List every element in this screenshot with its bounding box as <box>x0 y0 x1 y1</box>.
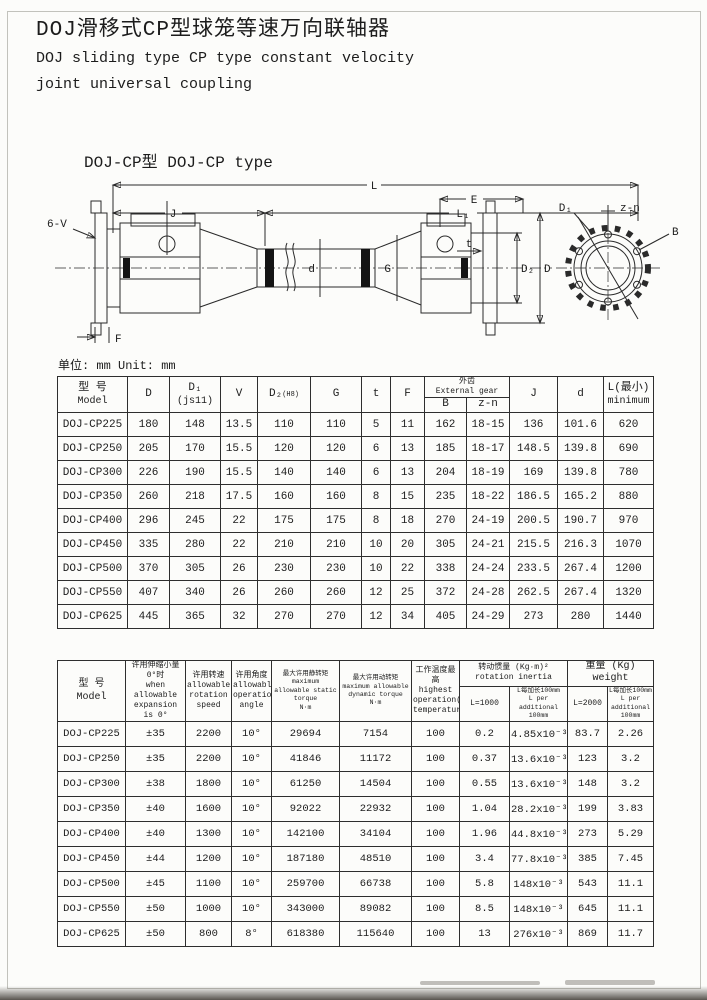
table-cell: 215.5 <box>510 533 558 557</box>
table-cell: ±35 <box>126 747 186 772</box>
table-cell: DOJ-CP250 <box>58 437 128 461</box>
table-row: DOJ-CP450±44120010°187180485101003.477.8… <box>58 847 654 872</box>
table-cell: 1.96 <box>460 822 510 847</box>
break-mark <box>286 243 295 291</box>
table-cell: ±35 <box>126 722 186 747</box>
table-cell: 280 <box>170 533 221 557</box>
table-cell: 10° <box>232 872 272 897</box>
table-cell: 24-29 <box>467 605 510 629</box>
table-cell: 1200 <box>186 847 232 872</box>
table-cell: 34 <box>391 605 425 629</box>
col-header-d: d <box>558 377 604 413</box>
table-cell: ±45 <box>126 872 186 897</box>
table-cell: 22 <box>221 533 258 557</box>
table-cell: 620 <box>604 413 654 437</box>
table-cell: 216.3 <box>558 533 604 557</box>
col-header-J: J <box>510 377 558 413</box>
model-type-subtitle: DOJ-CP型 DOJ-CP type <box>84 148 273 172</box>
dim-label-d: d <box>308 264 315 276</box>
table-cell: 1320 <box>604 581 654 605</box>
col-header-F: F <box>391 377 425 413</box>
dimension-table-body: DOJ-CP22518014813.511011051116218-151361… <box>58 413 654 629</box>
table-cell: 26 <box>221 581 258 605</box>
table-cell: 0.2 <box>460 722 510 747</box>
table-cell: 165.2 <box>558 485 604 509</box>
table-cell: 25 <box>391 581 425 605</box>
table-cell: 18-22 <box>467 485 510 509</box>
table-cell: 101.6 <box>558 413 604 437</box>
technical-drawing: L J L₁ E 6-V <box>25 170 685 352</box>
table-row: DOJ-CP50037030526230230102233824-24233.5… <box>58 557 654 581</box>
table-cell: 190.7 <box>558 509 604 533</box>
dim-label-L: L <box>371 181 378 193</box>
table-cell: 12 <box>362 605 391 629</box>
table-cell: 10° <box>232 747 272 772</box>
table-cell: ±40 <box>126 822 186 847</box>
table-cell: 260 <box>311 581 362 605</box>
col-header-G: G <box>311 377 362 413</box>
col-header-rotation-speed: 许用转速 allowable rotation speed <box>186 661 232 722</box>
dim-label-6V: 6-V <box>47 219 67 231</box>
table-cell: 1.04 <box>460 797 510 822</box>
table-cell: 18-17 <box>467 437 510 461</box>
col-header-D2: D₂(H8) <box>258 377 311 413</box>
table-row: DOJ-CP625±508008°61838011564010013276x10… <box>58 922 654 947</box>
dim-label-zn: z-n <box>620 203 640 215</box>
col-header-weight-L2000: L=2000 <box>568 686 608 721</box>
table-cell: 100 <box>412 822 460 847</box>
table-cell: 338 <box>425 557 467 581</box>
table-cell: 280 <box>558 605 604 629</box>
table-cell: DOJ-CP550 <box>58 897 126 922</box>
table-cell: 8.5 <box>460 897 510 922</box>
table-cell: 100 <box>412 747 460 772</box>
table-cell: 10° <box>232 772 272 797</box>
table-cell: 869 <box>568 922 608 947</box>
table-cell: 543 <box>568 872 608 897</box>
page-title: DOJ滑移式CP型球笼等速万向联轴器 DOJ sliding type CP t… <box>36 16 414 98</box>
table-row: DOJ-CP35026021817.516016081523518-22186.… <box>58 485 654 509</box>
table-cell: 22 <box>221 509 258 533</box>
table-cell: 110 <box>311 413 362 437</box>
table-cell: 235 <box>425 485 467 509</box>
table-cell: 880 <box>604 485 654 509</box>
table-cell: 405 <box>425 605 467 629</box>
col-header-D: D <box>128 377 170 413</box>
table-cell: 148x10⁻³ <box>510 872 568 897</box>
table-cell: 187180 <box>272 847 340 872</box>
label-6V: 6-V <box>47 219 95 238</box>
table-cell: 100 <box>412 772 460 797</box>
table-row: DOJ-CP350±40160010°92022229321001.0428.2… <box>58 797 654 822</box>
table-cell: 800 <box>186 922 232 947</box>
table-row: DOJ-CP300±38180010°61250145041000.5513.6… <box>58 772 654 797</box>
table-cell: 5 <box>362 413 391 437</box>
table-cell: 12 <box>362 581 391 605</box>
dim-label-L1: L₁ <box>456 209 469 221</box>
table-cell: DOJ-CP550 <box>58 581 128 605</box>
table-cell: 218 <box>170 485 221 509</box>
table-cell: 262.5 <box>510 581 558 605</box>
table-cell: DOJ-CP625 <box>58 605 128 629</box>
table-cell: 245 <box>170 509 221 533</box>
table-cell: 340 <box>170 581 221 605</box>
table-cell: 148 <box>170 413 221 437</box>
table-cell: 305 <box>170 557 221 581</box>
performance-table-body: DOJ-CP225±35220010°2969471541000.24.85x1… <box>58 722 654 947</box>
table-row: DOJ-CP62544536532270270123440524-2927328… <box>58 605 654 629</box>
dim-t: t <box>457 239 481 251</box>
table-cell: 273 <box>510 605 558 629</box>
table-cell: 276x10⁻³ <box>510 922 568 947</box>
table-cell: 618380 <box>272 922 340 947</box>
table-cell: 13.6x10⁻³ <box>510 747 568 772</box>
table-cell: 185 <box>425 437 467 461</box>
col-header-V: V <box>221 377 258 413</box>
title-english-line2: joint universal coupling <box>36 72 414 98</box>
table-cell: 204 <box>425 461 467 485</box>
table-cell: 139.8 <box>558 437 604 461</box>
table-cell: 6 <box>362 461 391 485</box>
table-cell: 385 <box>568 847 608 872</box>
col-header-max-temperature: 工作温度最高 highest operation(C°) temperature <box>412 661 460 722</box>
table-cell: 13.6x10⁻³ <box>510 772 568 797</box>
table-cell: 148.5 <box>510 437 558 461</box>
table-cell: 120 <box>311 437 362 461</box>
dim-label-D2: D₂ <box>521 264 534 276</box>
table-cell: 15 <box>391 485 425 509</box>
table-cell: 13 <box>391 437 425 461</box>
table-cell: 10° <box>232 897 272 922</box>
table-cell: 230 <box>311 557 362 581</box>
table-cell: 170 <box>170 437 221 461</box>
table-cell: 123 <box>568 747 608 772</box>
table-cell: 28.2x10⁻³ <box>510 797 568 822</box>
table-cell: 343000 <box>272 897 340 922</box>
table-cell: ±50 <box>126 897 186 922</box>
table-cell: 260 <box>258 581 311 605</box>
table-cell: 2200 <box>186 722 232 747</box>
table-cell: 200.5 <box>510 509 558 533</box>
table-cell: 139.8 <box>558 461 604 485</box>
dim-E: E <box>440 195 523 227</box>
table-cell: DOJ-CP350 <box>58 797 126 822</box>
table-cell: 4.85x10⁻³ <box>510 722 568 747</box>
scan-shadow <box>0 986 707 1000</box>
table-cell: 120 <box>258 437 311 461</box>
table-cell: DOJ-CP500 <box>58 872 126 897</box>
table-cell: 44.8x10⁻³ <box>510 822 568 847</box>
table-cell: 186.5 <box>510 485 558 509</box>
table-cell: 1440 <box>604 605 654 629</box>
table-cell: 690 <box>604 437 654 461</box>
table-cell: 205 <box>128 437 170 461</box>
dim-label-J: J <box>170 209 177 221</box>
table-cell: DOJ-CP250 <box>58 747 126 772</box>
table-cell: 140 <box>311 461 362 485</box>
table-row: DOJ-CP400±40130010°142100341041001.9644.… <box>58 822 654 847</box>
col-group-weight: 重量 (Kg) weight <box>568 661 654 687</box>
table-cell: 15.5 <box>221 461 258 485</box>
table-cell: 267.4 <box>558 581 604 605</box>
scan-smudge <box>565 980 655 985</box>
col-header-operation-angle: 许用角度 allowable operation angle <box>232 661 272 722</box>
table-cell: 160 <box>311 485 362 509</box>
table-cell: 0.55 <box>460 772 510 797</box>
table-cell: 8 <box>362 509 391 533</box>
col-header-model: 型 号 Model <box>58 377 128 413</box>
table-cell: 190 <box>170 461 221 485</box>
table-row: DOJ-CP25020517015.512012061318518-17148.… <box>58 437 654 461</box>
col-header-dynamic-torque: 最大许用动转矩 maximum allowable dynamic torque… <box>340 661 412 722</box>
table-cell: DOJ-CP225 <box>58 413 128 437</box>
table-row: DOJ-CP30022619015.514014061320418-191691… <box>58 461 654 485</box>
table-cell: 100 <box>412 872 460 897</box>
col-header-L-min: L(最小) minimum <box>604 377 654 413</box>
table-cell: 92022 <box>272 797 340 822</box>
table-cell: DOJ-CP625 <box>58 922 126 947</box>
title-chinese: DOJ滑移式CP型球笼等速万向联轴器 <box>36 16 414 46</box>
dim-D2: D₂ <box>483 233 534 303</box>
title-english-line1: DOJ sliding type CP type constant veloci… <box>36 46 414 72</box>
table-cell: 305 <box>425 533 467 557</box>
col-group-external-gear: 外齿 External gear <box>425 377 510 398</box>
table-cell: 2.26 <box>608 722 654 747</box>
table-cell: ±50 <box>126 922 186 947</box>
table-cell: 24-24 <box>467 557 510 581</box>
table-cell: 34104 <box>340 822 412 847</box>
table-cell: 32 <box>221 605 258 629</box>
dim-label-D1: D₁ <box>559 203 572 215</box>
table-cell: 1300 <box>186 822 232 847</box>
table-cell: DOJ-CP400 <box>58 509 128 533</box>
scan-smudge <box>420 981 540 985</box>
table-cell: 11172 <box>340 747 412 772</box>
table-cell: 210 <box>258 533 311 557</box>
table-cell: DOJ-CP300 <box>58 461 128 485</box>
table-cell: 100 <box>412 922 460 947</box>
table-cell: 180 <box>128 413 170 437</box>
table-cell: 148x10⁻³ <box>510 897 568 922</box>
dim-L1: L₁ <box>265 209 638 221</box>
table-cell: 210 <box>311 533 362 557</box>
table-cell: 11.1 <box>608 897 654 922</box>
table-cell: 407 <box>128 581 170 605</box>
table-row: DOJ-CP45033528022210210102030524-21215.5… <box>58 533 654 557</box>
dim-label-D: D <box>544 264 551 276</box>
table-cell: 259700 <box>272 872 340 897</box>
table-cell: 3.2 <box>608 772 654 797</box>
table-cell: ±44 <box>126 847 186 872</box>
table-cell: 61250 <box>272 772 340 797</box>
table-cell: 160 <box>258 485 311 509</box>
table-cell: 199 <box>568 797 608 822</box>
table-cell: 136 <box>510 413 558 437</box>
table-cell: 26 <box>221 557 258 581</box>
table-cell: 24-21 <box>467 533 510 557</box>
table-cell: 148 <box>568 772 608 797</box>
table-cell: 77.8x10⁻³ <box>510 847 568 872</box>
table-cell: 162 <box>425 413 467 437</box>
table-cell: 10 <box>362 533 391 557</box>
table-cell: 3.2 <box>608 747 654 772</box>
col-header-inertia-per-100mm: L每加长100mm L per additional 100mm <box>510 686 568 721</box>
table-cell: 370 <box>128 557 170 581</box>
table-cell: 66738 <box>340 872 412 897</box>
table-cell: 13 <box>460 922 510 947</box>
table-cell: 970 <box>604 509 654 533</box>
table-cell: 100 <box>412 847 460 872</box>
table-cell: 5.8 <box>460 872 510 897</box>
table-cell: 175 <box>258 509 311 533</box>
table-cell: 226 <box>128 461 170 485</box>
col-header-B: B <box>425 398 467 413</box>
table-cell: 13 <box>391 461 425 485</box>
table-cell: 1200 <box>604 557 654 581</box>
table-cell: 41846 <box>272 747 340 772</box>
table-cell: 100 <box>412 722 460 747</box>
table-cell: 260 <box>128 485 170 509</box>
table-cell: 7154 <box>340 722 412 747</box>
unit-note: 单位: mm Unit: mm <box>58 356 176 373</box>
table-cell: 89082 <box>340 897 412 922</box>
dim-D1: D₁ <box>559 203 589 230</box>
table-row: DOJ-CP4002962452217517581827024-19200.51… <box>58 509 654 533</box>
table-cell: DOJ-CP450 <box>58 533 128 557</box>
table-row: DOJ-CP550±50100010°343000890821008.5148x… <box>58 897 654 922</box>
table-cell: 18-19 <box>467 461 510 485</box>
table-cell: 2200 <box>186 747 232 772</box>
table-cell: 267.4 <box>558 557 604 581</box>
table-cell: 18 <box>391 509 425 533</box>
dim-label-E: E <box>471 195 478 207</box>
table-cell: 83.7 <box>568 722 608 747</box>
table-cell: 372 <box>425 581 467 605</box>
table-cell: DOJ-CP350 <box>58 485 128 509</box>
col-header-zn: z-n <box>467 398 510 413</box>
table-cell: ±40 <box>126 797 186 822</box>
table-cell: 22932 <box>340 797 412 822</box>
table-cell: 10° <box>232 822 272 847</box>
dim-label-G: G <box>384 264 391 276</box>
catalog-page: DOJ滑移式CP型球笼等速万向联轴器 DOJ sliding type CP t… <box>0 0 707 1000</box>
table-cell: DOJ-CP225 <box>58 722 126 747</box>
table-cell: 233.5 <box>510 557 558 581</box>
table-cell: 169 <box>510 461 558 485</box>
table-cell: 13.5 <box>221 413 258 437</box>
table-cell: 11.1 <box>608 872 654 897</box>
col-header-inertia-L1000: L=1000 <box>460 686 510 721</box>
table-cell: 10 <box>362 557 391 581</box>
table-cell: 270 <box>311 605 362 629</box>
table-cell: 365 <box>170 605 221 629</box>
dim-d: d <box>308 239 320 297</box>
table-row: DOJ-CP500±45110010°259700667381005.8148x… <box>58 872 654 897</box>
table-cell: 645 <box>568 897 608 922</box>
dimension-table: 型 号 Model D D₁ (js11) V D₂(H8) G t F 外齿 … <box>57 376 654 629</box>
table-cell: 0.37 <box>460 747 510 772</box>
table-cell: 3.83 <box>608 797 654 822</box>
table-cell: 15.5 <box>221 437 258 461</box>
table-row: DOJ-CP22518014813.511011051116218-151361… <box>58 413 654 437</box>
col-header-model: 型 号 Model <box>58 661 126 722</box>
col-group-rotation-inertia: 转动惯量 (Kg·m)² rotation inertia <box>460 661 568 687</box>
table-cell: 270 <box>425 509 467 533</box>
table-cell: DOJ-CP400 <box>58 822 126 847</box>
table-cell: 115640 <box>340 922 412 947</box>
table-cell: 140 <box>258 461 311 485</box>
table-cell: 11.7 <box>608 922 654 947</box>
dim-F: F <box>77 327 122 346</box>
table-cell: 1100 <box>186 872 232 897</box>
table-cell: 48510 <box>340 847 412 872</box>
table-cell: 335 <box>128 533 170 557</box>
table-row: DOJ-CP225±35220010°2969471541000.24.85x1… <box>58 722 654 747</box>
table-cell: 29694 <box>272 722 340 747</box>
table-cell: DOJ-CP300 <box>58 772 126 797</box>
col-header-expansion: 许用伸缩小量0°时 when allowable expansion is 0° <box>126 661 186 722</box>
table-cell: 1070 <box>604 533 654 557</box>
col-header-t: t <box>362 377 391 413</box>
table-cell: 18-15 <box>467 413 510 437</box>
dim-label-B: B <box>672 227 679 239</box>
col-header-static-torque: 最大许用静转矩 maximum allowable static torque … <box>272 661 340 722</box>
table-cell: 6 <box>362 437 391 461</box>
table-cell: DOJ-CP500 <box>58 557 128 581</box>
table-cell: 1800 <box>186 772 232 797</box>
table-cell: 175 <box>311 509 362 533</box>
table-cell: 780 <box>604 461 654 485</box>
table-cell: 273 <box>568 822 608 847</box>
table-cell: 10° <box>232 847 272 872</box>
table-cell: 100 <box>412 897 460 922</box>
table-cell: 24-19 <box>467 509 510 533</box>
table-row: DOJ-CP55040734026260260122537224-28262.5… <box>58 581 654 605</box>
table-cell: 1600 <box>186 797 232 822</box>
table-cell: 230 <box>258 557 311 581</box>
table-cell: 445 <box>128 605 170 629</box>
table-cell: 10° <box>232 722 272 747</box>
table-cell: 8 <box>362 485 391 509</box>
dim-J: J <box>113 209 265 246</box>
table-cell: 22 <box>391 557 425 581</box>
table-cell: 270 <box>258 605 311 629</box>
table-cell: 100 <box>412 797 460 822</box>
dim-B: B <box>639 227 679 250</box>
col-header-D1: D₁ (js11) <box>170 377 221 413</box>
dim-label-F: F <box>115 334 122 346</box>
table-cell: 296 <box>128 509 170 533</box>
table-cell: 7.45 <box>608 847 654 872</box>
table-cell: 10° <box>232 797 272 822</box>
performance-table: 型 号 Model 许用伸缩小量0°时 when allowable expan… <box>57 660 654 947</box>
table-cell: ±38 <box>126 772 186 797</box>
table-cell: 20 <box>391 533 425 557</box>
table-row: DOJ-CP250±35220010°41846111721000.3713.6… <box>58 747 654 772</box>
table-cell: 17.5 <box>221 485 258 509</box>
table-cell: 110 <box>258 413 311 437</box>
col-header-weight-per-100mm: L每加长100mm L per additional 100mm <box>608 686 654 721</box>
table-cell: DOJ-CP450 <box>58 847 126 872</box>
table-cell: 24-28 <box>467 581 510 605</box>
table-cell: 11 <box>391 413 425 437</box>
table-cell: 3.4 <box>460 847 510 872</box>
dim-label-t: t <box>466 239 473 251</box>
table-cell: 1000 <box>186 897 232 922</box>
table-cell: 14504 <box>340 772 412 797</box>
table-cell: 8° <box>232 922 272 947</box>
table-cell: 5.29 <box>608 822 654 847</box>
